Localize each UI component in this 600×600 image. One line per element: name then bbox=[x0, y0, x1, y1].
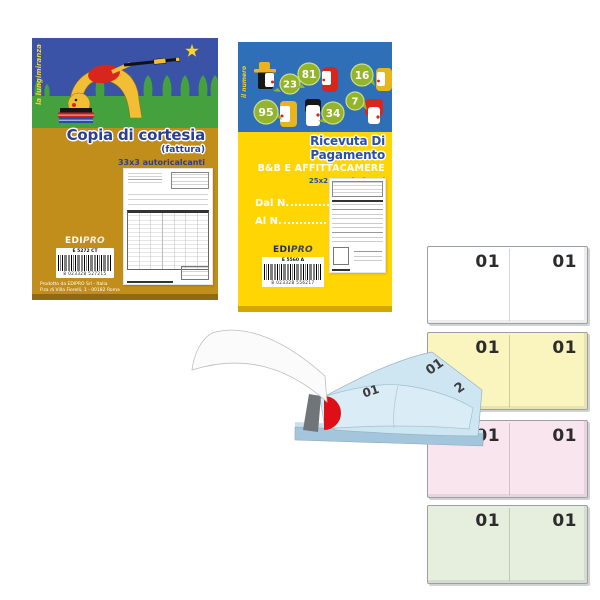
brand-block: EDIPRO E 5560 A 8 023328 556217 bbox=[262, 245, 324, 287]
svg-text:16: 16 bbox=[355, 70, 370, 82]
svg-text:95: 95 bbox=[258, 106, 273, 119]
series-vertical-label: il numero bbox=[241, 66, 248, 98]
perforation-line bbox=[509, 508, 510, 581]
svg-text:23: 23 bbox=[283, 80, 297, 91]
dotted-line bbox=[284, 222, 326, 224]
ticket-number-left: 01 bbox=[475, 511, 500, 531]
invoice-title-block: Copia di cortesia (fattura) 33x3 autoric… bbox=[67, 126, 205, 167]
to-number-field: Al N. bbox=[255, 216, 326, 227]
book-stack-icon bbox=[58, 108, 94, 123]
invoice-format: 33x3 autoricalcanti bbox=[67, 158, 205, 167]
svg-text:34: 34 bbox=[326, 108, 341, 120]
edipro-logo: EDIPRO bbox=[262, 245, 324, 255]
svg-text:7: 7 bbox=[352, 97, 359, 108]
barcode-digits: 8 023328 527215 bbox=[58, 271, 112, 276]
barcode-bars-icon bbox=[58, 255, 112, 271]
face-blackhair-man bbox=[305, 99, 321, 126]
receipt-title: Ricevuta Di Pagamento bbox=[238, 134, 385, 162]
product-code: E 5272 CT bbox=[58, 249, 112, 254]
manufacturer-note: Prodotto da EDIPRO Srl - Italia P.za di … bbox=[40, 282, 120, 295]
lifted-white-sheet bbox=[192, 330, 327, 402]
receipt-cover-illustration: 23 81 16 95 34 bbox=[238, 42, 392, 132]
receipt-form-thumbnail bbox=[329, 178, 386, 273]
barcode: E 5272 CT 8 023328 527215 bbox=[56, 248, 114, 278]
invoice-cover-illustration: la lungimiranza bbox=[32, 38, 218, 128]
product-code: E 5560 A bbox=[264, 258, 322, 263]
invoice-book-cover: la lungimiranza Copia di cortesia (fattu… bbox=[32, 38, 218, 300]
barcode-bars-icon bbox=[264, 264, 322, 280]
fanned-pad-illustration: 01 2 01 bbox=[185, 326, 490, 450]
receipt-book-cover: 23 81 16 95 34 bbox=[238, 42, 392, 312]
face-blonde-right bbox=[376, 68, 392, 91]
ticket-number-right: 01 bbox=[552, 426, 577, 446]
barcode: E 5560 A 8 023328 556217 bbox=[262, 257, 324, 287]
svg-text:81: 81 bbox=[302, 69, 317, 81]
series-vertical-label: la lungimiranza bbox=[35, 44, 43, 105]
ticket-pad-white: 01 01 bbox=[427, 246, 588, 324]
edipro-logo: EDIPRO bbox=[56, 236, 114, 246]
invoice-title: Copia di cortesia bbox=[67, 126, 205, 144]
grass bbox=[32, 96, 218, 128]
ticket-number-left: 01 bbox=[475, 252, 500, 272]
perforation-line bbox=[509, 335, 510, 407]
ticket-pad-green: 01 01 bbox=[427, 505, 588, 584]
receipt-subtitle: B&B E AFFITTACAMERE bbox=[238, 163, 385, 174]
spine-wedge bbox=[303, 394, 321, 432]
ticket-number-right: 01 bbox=[552, 511, 577, 531]
invoice-form-thumbnail bbox=[123, 168, 213, 285]
from-number-field: Dal N. bbox=[255, 198, 333, 209]
perforation-line bbox=[509, 249, 510, 321]
barcode-digits: 8 023328 556217 bbox=[264, 280, 322, 285]
perforation-line bbox=[509, 423, 510, 495]
ticket-number-right: 01 bbox=[552, 252, 577, 272]
product-collage: la lungimiranza Copia di cortesia (fattu… bbox=[0, 0, 600, 600]
brand-block: EDIPRO E 5272 CT 8 023328 527215 bbox=[56, 236, 114, 278]
dotted-line bbox=[291, 204, 333, 206]
ticket-number-right: 01 bbox=[552, 338, 577, 358]
invoice-subtitle: (fattura) bbox=[67, 145, 205, 155]
face-blonde-left bbox=[280, 101, 297, 127]
face-redhead-woman bbox=[322, 67, 338, 92]
